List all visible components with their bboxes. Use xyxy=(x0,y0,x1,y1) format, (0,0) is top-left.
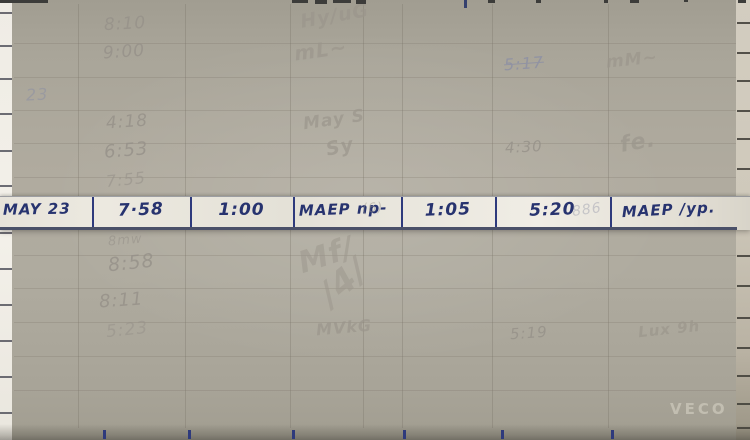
ghost-writing: 8mw xyxy=(107,232,143,250)
ghost-signature: mM~ xyxy=(605,47,659,72)
row-divider-tick xyxy=(188,430,191,439)
ghost-writing: 4:30 xyxy=(505,137,544,157)
grid-line xyxy=(14,390,736,391)
ruled-line xyxy=(0,150,12,152)
edge-mark xyxy=(488,0,495,3)
edge-mark xyxy=(536,0,541,3)
row-divider-tick xyxy=(501,430,504,439)
ruled-line xyxy=(737,80,750,82)
ghost-writing: (6) xyxy=(361,200,384,217)
ghost-writing: 8:58 xyxy=(107,250,156,277)
timesheet-photo: 8:10 9:00 Hy/uG mL~ 5:17 mM~ A 23 4:18 6… xyxy=(0,0,750,440)
ghost-writing: 5:19 xyxy=(509,323,548,344)
cell-signature-2: MAEP /yp. xyxy=(621,197,742,230)
ghost-writing: 8:11 xyxy=(98,288,144,312)
ruled-line xyxy=(0,185,12,187)
ghost-writing: 9:00 xyxy=(102,41,145,64)
row-bottom-rule xyxy=(0,227,737,230)
row-divider-tick xyxy=(103,430,106,439)
edge-mark xyxy=(464,0,467,8)
ruled-line xyxy=(737,110,750,112)
edge-mark xyxy=(356,0,366,4)
ghost-writing: 5:23 xyxy=(105,318,149,342)
edge-mark xyxy=(315,0,327,4)
veco-watermark: VECO xyxy=(670,400,728,418)
bottom-shadow xyxy=(0,424,750,440)
edge-mark xyxy=(684,0,688,2)
ghost-signature: Hy/uG xyxy=(299,0,371,33)
grid-line xyxy=(14,110,736,111)
grid-line xyxy=(14,77,736,78)
ghost-writing: 8:10 xyxy=(104,13,147,35)
ruled-line xyxy=(737,375,750,377)
ruled-line xyxy=(0,12,12,14)
ruled-line xyxy=(737,22,750,24)
edge-mark xyxy=(292,0,308,3)
edge-mark xyxy=(333,0,351,3)
ghost-writing: 6:53 xyxy=(103,138,149,163)
edge-mark xyxy=(630,0,639,3)
ruled-line xyxy=(737,138,750,140)
ruled-line xyxy=(0,412,12,414)
ruled-line xyxy=(0,113,12,115)
ruled-line xyxy=(0,376,12,378)
edge-mark xyxy=(604,0,608,3)
grid-line xyxy=(14,356,736,357)
ruled-line xyxy=(737,285,750,287)
cell-signature-1: MAEP np- xyxy=(299,198,400,228)
ghost-signature: MVkG xyxy=(315,316,373,340)
active-row-strip: MAY 23 7·58 1:00 MAEP np- 1:05 5:20 MAEP… xyxy=(0,196,750,230)
edge-mark xyxy=(738,0,746,3)
cell-time-3: 1:05 xyxy=(401,198,496,228)
ghost-signature: Lux 9h xyxy=(637,317,701,341)
ghost-writing: 23 xyxy=(26,84,49,104)
ghost-signature: Sy xyxy=(324,133,356,160)
row-divider-tick xyxy=(611,430,614,439)
column-divider xyxy=(293,197,295,230)
ruled-line xyxy=(737,403,750,405)
cell-time-2: 1:00 xyxy=(190,200,293,227)
ghost-writing: 7:55 xyxy=(105,168,147,191)
ruled-line xyxy=(0,78,12,80)
row-divider-tick xyxy=(403,430,406,439)
ghost-writing: 5:17 xyxy=(503,53,544,75)
edge-mark xyxy=(0,0,48,3)
ruled-line xyxy=(737,52,750,54)
ruled-line xyxy=(0,304,12,306)
ruled-line xyxy=(737,317,750,319)
ruled-line xyxy=(737,347,750,349)
ruled-line xyxy=(737,168,750,170)
column-divider xyxy=(610,197,612,230)
row-divider-tick xyxy=(292,430,295,439)
ruled-line xyxy=(737,255,750,257)
ghost-signature: fe. xyxy=(618,127,658,158)
ruled-line xyxy=(0,268,12,270)
ruled-line xyxy=(0,340,12,342)
ruled-line xyxy=(0,45,12,47)
ruled-line xyxy=(0,232,12,234)
cell-time-1: 7·58 xyxy=(92,198,191,228)
ghost-writing: 4:18 xyxy=(105,111,148,134)
ghost-signature: mL~ xyxy=(293,34,349,65)
cell-date: MAY 23 xyxy=(3,199,89,227)
